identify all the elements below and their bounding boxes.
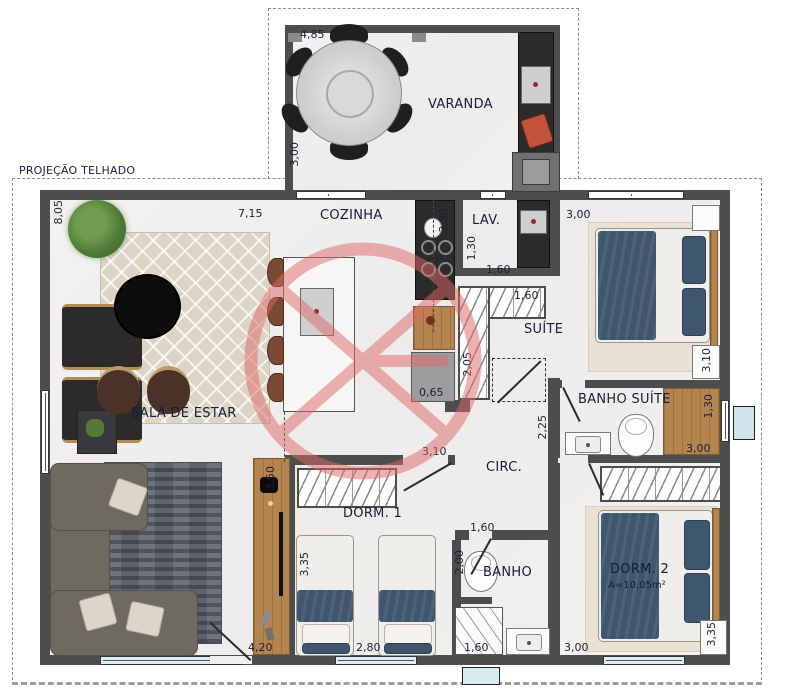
kitchen-island-sink	[300, 288, 334, 336]
kitchen-guide-line	[433, 200, 434, 332]
room-label-dorm1: DORM. 1	[343, 506, 402, 521]
wall-banho-mid	[452, 597, 492, 604]
dorm2-area: A=10,05m²	[608, 580, 666, 591]
dim-suite-closet: 1,60	[514, 289, 539, 302]
dorm1-bed-blanket	[379, 590, 435, 622]
window-suite-top	[588, 191, 684, 199]
window-sala-left	[41, 390, 49, 474]
suite-bed-blanket	[598, 231, 656, 340]
floor-plan: PROJEÇÃO TELHADO 4,85 3,00 VARANDA	[0, 0, 797, 691]
kitchen-stool	[267, 373, 284, 402]
wall-lav-left	[455, 200, 463, 268]
tv	[279, 512, 283, 596]
banho-suite-toilet	[618, 414, 654, 457]
kitchen-stool	[267, 258, 284, 287]
wall-lav-suite	[550, 190, 560, 276]
dim-varanda-depth: 3,00	[288, 142, 301, 167]
dim-banho-suite-shower-bottom: 3,00	[686, 442, 711, 455]
dim-banho-bottom: 1,60	[464, 641, 489, 654]
room-label-circ: CIRC.	[486, 460, 522, 475]
kitchen-stool	[267, 336, 284, 365]
dorm2-bed-pillow	[684, 573, 710, 623]
dim-dorm1-bottom: 2,80	[356, 641, 381, 654]
room-label-dorm2: DORM. 2	[610, 562, 669, 577]
wall-banho-suite-top-b	[585, 380, 730, 388]
dorm1-bed-pillow	[384, 624, 432, 645]
dorm1-bed-blanket	[297, 590, 353, 622]
dim-circ-top: 3,10	[422, 445, 447, 458]
dim-lav-width: 1,30	[465, 236, 478, 261]
dim-dorm1-left: 3,35	[298, 552, 311, 577]
sofa-seat	[50, 590, 198, 656]
wall-banho-top-a	[455, 530, 469, 540]
dim-sala-bottom: 4,20	[248, 641, 273, 654]
dim-dorm2-right: 3,35	[705, 622, 718, 647]
side-table-plant	[86, 419, 104, 437]
wall-circ-suite	[548, 378, 560, 458]
dim-suite-closet-depth: 2,05	[461, 352, 474, 377]
room-label-banho-suite: BANHO SUÍTE	[578, 392, 671, 407]
dim-banho-side: 2,00	[453, 550, 466, 575]
kitchen-guide-line	[284, 412, 285, 462]
coffee-table	[114, 274, 181, 339]
dim-lav-bottom: 1,60	[486, 263, 511, 276]
suite-closet-left	[458, 286, 490, 400]
suite-headboard	[710, 224, 718, 346]
room-label-suite: SUÍTE	[524, 322, 563, 337]
varanda-sink	[521, 66, 551, 104]
room-label-cozinha: COZINHA	[320, 208, 383, 223]
wall-banho-top-b	[492, 530, 556, 540]
room-label-lav: LAV.	[472, 213, 500, 228]
dining-table-center	[326, 70, 374, 118]
dim-sala-rack: 3,50	[264, 466, 277, 491]
sliding-door-varanda-cozinha	[296, 191, 366, 199]
dim-cozinha-column: 3,50	[437, 208, 450, 233]
dorm2-closet	[600, 466, 722, 502]
lav-sink	[520, 210, 547, 234]
dim-sala-top: 7,15	[238, 207, 263, 220]
roof-projection-label: PROJEÇÃO TELHADO	[19, 164, 135, 177]
dim-cozinha-cabinet: 0,65	[419, 386, 444, 399]
suite-nightstand	[692, 205, 720, 231]
wall-banho-dorm2	[548, 463, 560, 655]
suite-bed-pillow	[682, 288, 706, 336]
cooktop-burner	[438, 262, 453, 277]
dim-dorm2-bottom: 3,00	[564, 641, 589, 654]
exterior-unit-banho	[462, 667, 500, 685]
dim-banho-top: 1,60	[470, 521, 495, 534]
dorm1-bed-pillow	[302, 624, 350, 645]
dim-suite-top: 3,00	[566, 208, 591, 221]
dorm1-bed-pillow-blue	[384, 643, 432, 654]
wall-dorm1-top	[285, 455, 403, 465]
tv-knob	[268, 501, 273, 506]
room-label-varanda: VARANDA	[428, 97, 493, 112]
wall-dorm2-top-b	[588, 455, 730, 463]
room-label-sala: SALA DE ESTAR	[131, 406, 237, 421]
varanda-barbecue-inner	[522, 159, 550, 185]
wall-dorm2-top-a	[548, 455, 558, 463]
window-lav-top	[480, 191, 506, 199]
dim-sala-left: 8,05	[52, 200, 65, 225]
window-dorm2-bottom	[603, 656, 685, 665]
exterior-unit-banho-suite	[733, 406, 755, 440]
window-dorm1-bottom	[335, 656, 417, 665]
kitchen-stool	[267, 297, 284, 326]
dim-varanda-width: 4,85	[300, 28, 325, 41]
room-label-banho: BANHO	[483, 565, 532, 580]
kitchen-cabinet-wood	[413, 306, 455, 350]
dim-banho-suite-corridor: 2,25	[536, 415, 549, 440]
dim-banho-suite-shower-side: 1,30	[702, 394, 715, 419]
wall-pillar	[412, 33, 426, 42]
wall-banho-suite-top-a	[548, 380, 562, 388]
banho-basin	[516, 634, 542, 651]
cooktop-burner	[438, 240, 453, 255]
suite-bed-pillow	[682, 236, 706, 284]
window-banho-suite-right	[721, 400, 729, 442]
dim-suite-right: 3,10	[700, 348, 713, 373]
banho-suite-basin	[575, 436, 601, 453]
dorm1-closet	[297, 468, 397, 508]
plant	[68, 200, 126, 258]
dorm1-bed-pillow-blue	[302, 643, 350, 654]
dorm2-bed-pillow	[684, 520, 710, 570]
